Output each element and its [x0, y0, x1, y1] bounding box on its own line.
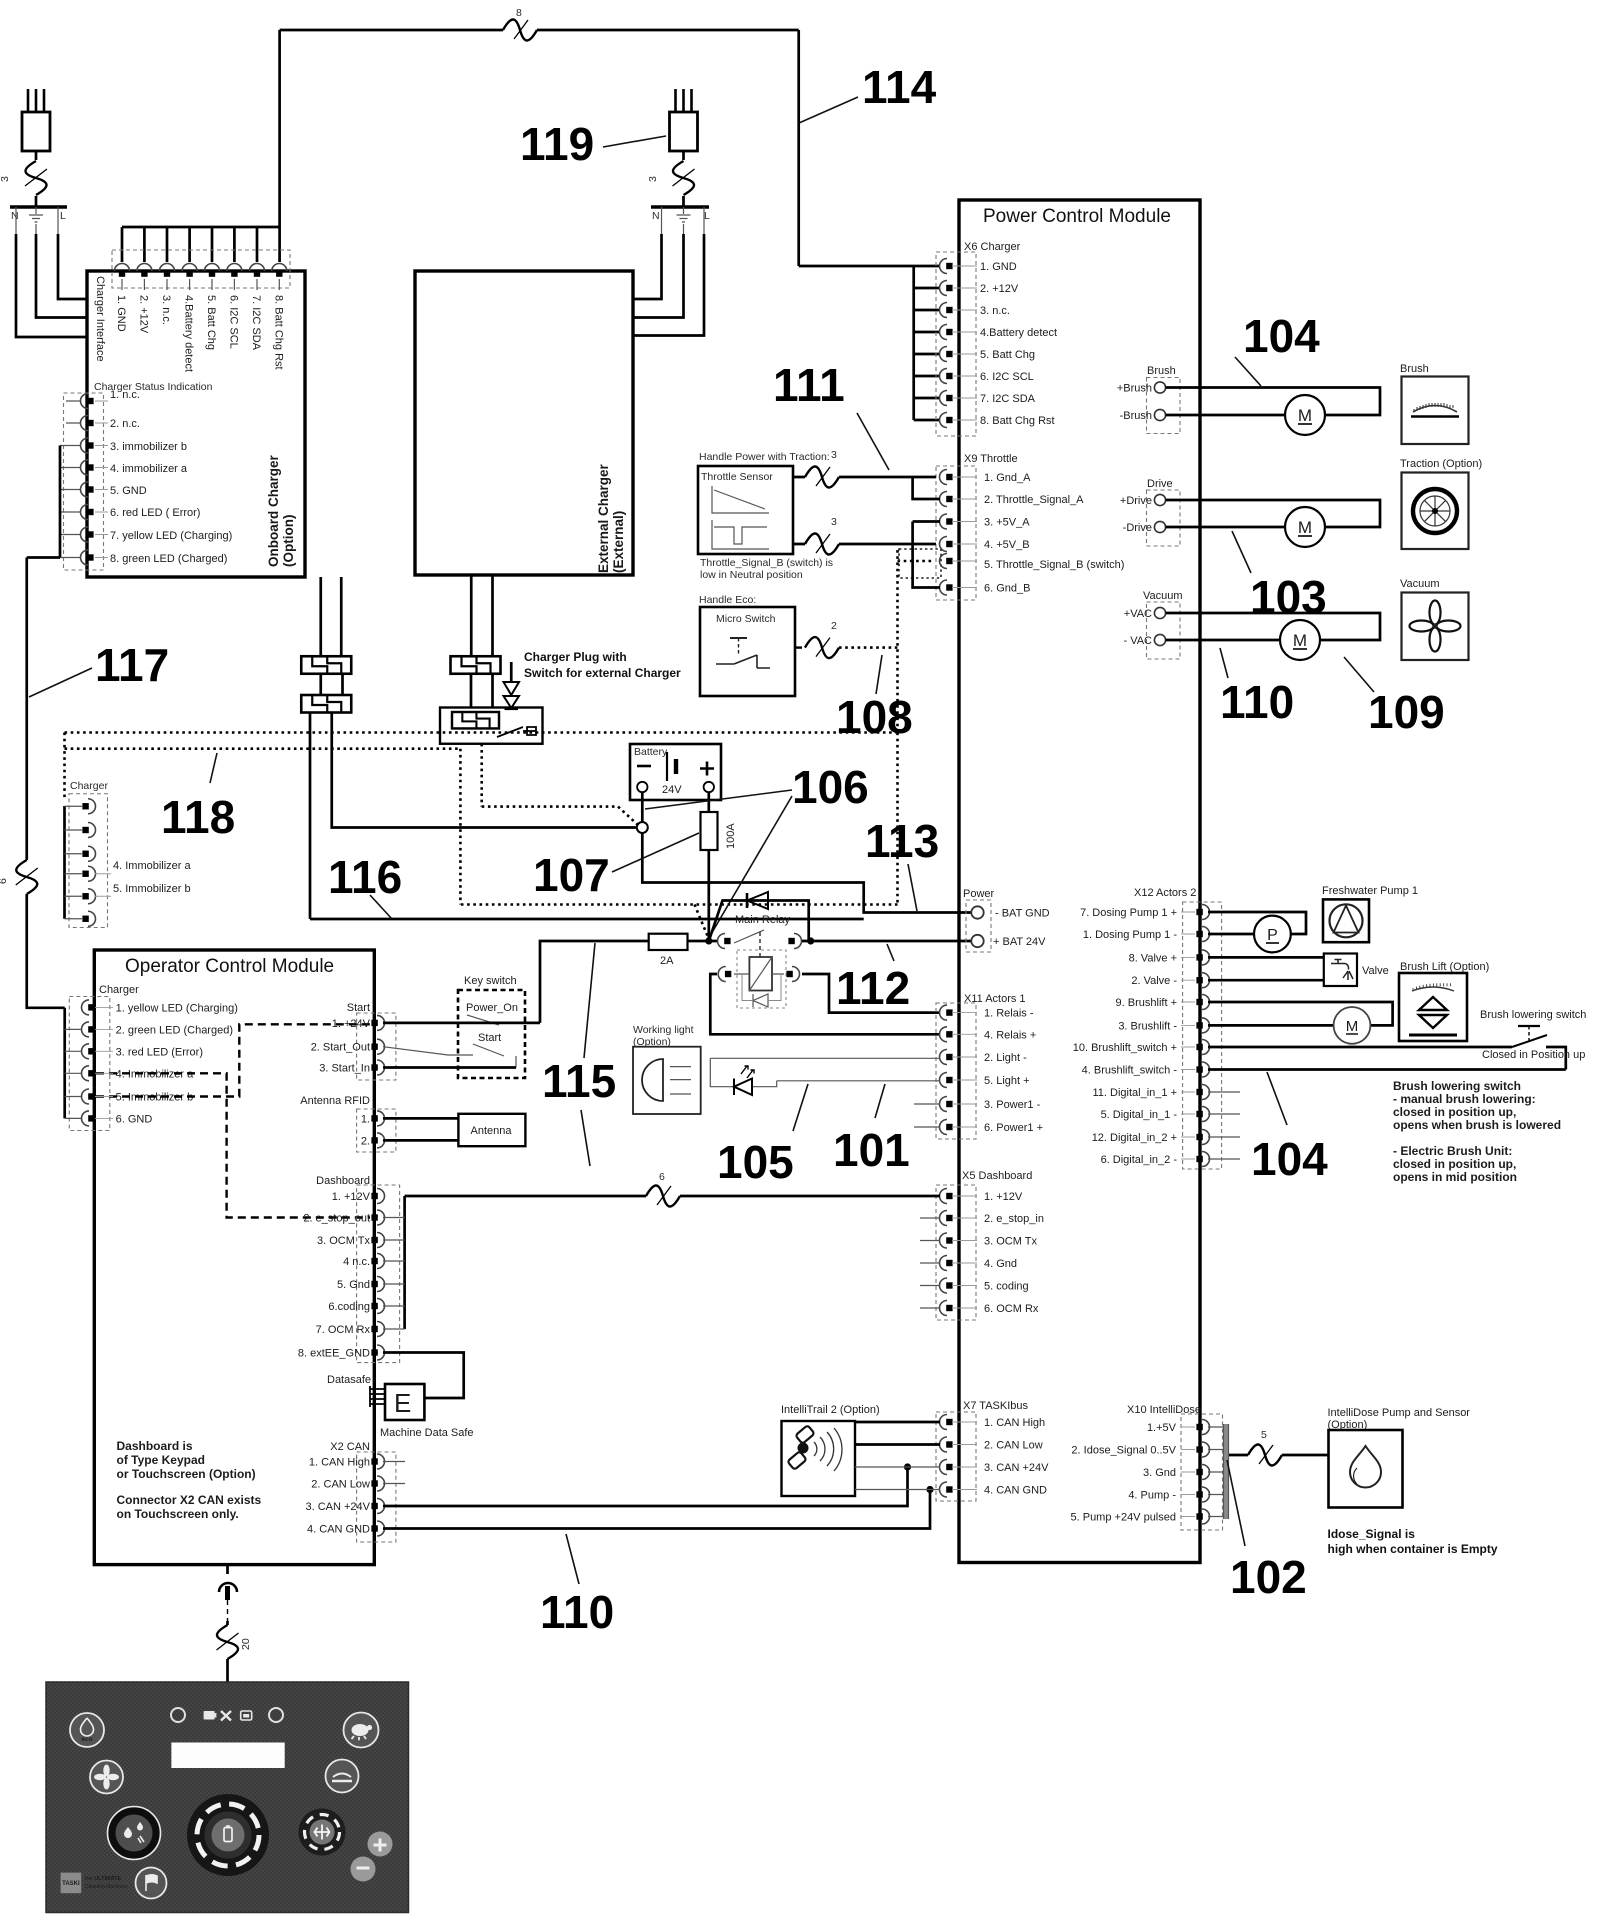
- svg-text:1. +12V: 1. +12V: [332, 1191, 371, 1203]
- svg-text:M: M: [1346, 1018, 1359, 1035]
- svg-text:4. Brushlift_switch -: 4. Brushlift_switch -: [1082, 1065, 1178, 1077]
- svg-text:110: 110: [540, 1586, 614, 1638]
- svg-text:3. red LED (Error): 3. red LED (Error): [116, 1046, 203, 1058]
- svg-text:Switch for external Charger: Switch for external Charger: [524, 666, 681, 680]
- svg-text:3. Brushlift -: 3. Brushlift -: [1118, 1020, 1177, 1032]
- svg-text:114: 114: [862, 61, 937, 113]
- svg-text:108: 108: [836, 691, 913, 743]
- svg-text:2: 2: [831, 620, 837, 632]
- svg-text:Cleaning Machines: Cleaning Machines: [85, 1884, 128, 1890]
- svg-text:Closed in Position up: Closed in Position up: [1482, 1049, 1585, 1061]
- svg-text:5. Digital_in_1 -: 5. Digital_in_1 -: [1101, 1109, 1178, 1121]
- svg-text:Charger: Charger: [70, 780, 108, 792]
- svg-text:6. I2C SCL: 6. I2C SCL: [980, 371, 1034, 383]
- svg-text:+Brush: +Brush: [1117, 383, 1152, 395]
- svg-text:6. Digital_in_2 -: 6. Digital_in_2 -: [1101, 1154, 1178, 1166]
- svg-text:9. Brushlift +: 9. Brushlift +: [1116, 997, 1177, 1009]
- svg-text:1. Relais -: 1. Relais -: [984, 1008, 1034, 1020]
- svg-text:5. Pump +24V pulsed: 5. Pump +24V pulsed: [1071, 1512, 1177, 1524]
- svg-text:3: 3: [831, 516, 837, 528]
- svg-text:5. GND: 5. GND: [110, 485, 147, 497]
- svg-text:of Type Keypad: of Type Keypad: [117, 1453, 205, 1467]
- svg-text:3. Start_In: 3. Start_In: [319, 1063, 370, 1075]
- svg-text:113: 113: [865, 815, 939, 867]
- svg-text:4. Relais +: 4. Relais +: [984, 1029, 1036, 1041]
- svg-text:N: N: [11, 210, 19, 222]
- svg-text:+VAC: +VAC: [1124, 608, 1152, 620]
- svg-text:4. Pump -: 4. Pump -: [1128, 1490, 1176, 1502]
- svg-text:eco: eco: [81, 1736, 92, 1743]
- svg-text:4.Battery detect: 4.Battery detect: [183, 295, 195, 372]
- svg-text:2. Light -: 2. Light -: [984, 1052, 1027, 1064]
- svg-text:4. +5V_B: 4. +5V_B: [984, 539, 1030, 551]
- svg-text:Traction (Option): Traction (Option): [1400, 458, 1482, 470]
- svg-text:Power_On: Power_On: [466, 1002, 518, 1014]
- svg-text:5: 5: [1261, 1429, 1267, 1441]
- svg-text:5. Light +: 5. Light +: [984, 1075, 1030, 1087]
- svg-text:2. CAN Low: 2. CAN Low: [984, 1440, 1043, 1452]
- svg-text:2. CAN Low: 2. CAN Low: [311, 1479, 370, 1491]
- svg-text:IntelliTrail 2 (Option): IntelliTrail 2 (Option): [781, 1404, 880, 1416]
- svg-text:Handle Power with Traction:: Handle Power with Traction:: [699, 451, 830, 463]
- svg-text:Key switch: Key switch: [464, 975, 517, 987]
- svg-text:1. Dosing Pump 1 -: 1. Dosing Pump 1 -: [1083, 929, 1177, 941]
- svg-text:3. OCM Tx: 3. OCM Tx: [317, 1235, 370, 1247]
- svg-text:3. Gnd: 3. Gnd: [1143, 1467, 1176, 1479]
- svg-text:Vacuum: Vacuum: [1400, 578, 1440, 590]
- svg-text:closed in position up,: closed in position up,: [1393, 1157, 1516, 1171]
- svg-text:104: 104: [1243, 310, 1320, 362]
- svg-text:L: L: [704, 210, 710, 222]
- svg-text:N: N: [652, 210, 660, 222]
- svg-text:104: 104: [1251, 1133, 1328, 1185]
- svg-text:7. Dosing Pump 1 +: 7. Dosing Pump 1 +: [1080, 907, 1177, 919]
- svg-text:-Drive: -Drive: [1123, 522, 1152, 534]
- svg-text:- VAC: - VAC: [1123, 635, 1152, 647]
- svg-text:Charger Plug with: Charger Plug with: [524, 650, 627, 664]
- svg-text:IntelliDose Pump and Sensor: IntelliDose Pump and Sensor: [1328, 1407, 1471, 1419]
- svg-text:8. Batt Chg Rst: 8. Batt Chg Rst: [980, 415, 1055, 427]
- svg-text:Onboard Charger: Onboard Charger: [266, 454, 281, 567]
- svg-text:2.: 2.: [361, 1135, 370, 1147]
- svg-text:2. green LED (Charged): 2. green LED (Charged): [116, 1024, 233, 1036]
- svg-text:100A: 100A: [725, 823, 737, 849]
- svg-text:2. Start_Out: 2. Start_Out: [311, 1042, 370, 1054]
- svg-text:2. Idose_Signal 0..5V: 2. Idose_Signal 0..5V: [1071, 1445, 1176, 1457]
- svg-text:6. I2C SCL: 6. I2C SCL: [227, 295, 239, 349]
- svg-text:Start: Start: [478, 1032, 501, 1044]
- svg-text:1. yellow LED (Charging): 1. yellow LED (Charging): [116, 1002, 238, 1014]
- svg-text:+ BAT 24V: + BAT 24V: [993, 936, 1046, 948]
- svg-text:L: L: [60, 210, 66, 222]
- svg-text:Power: Power: [963, 888, 995, 900]
- svg-text:1.+5V: 1.+5V: [1147, 1422, 1177, 1434]
- svg-text:2. n.c.: 2. n.c.: [110, 418, 140, 430]
- svg-text:opens in mid position: opens in mid position: [1393, 1170, 1517, 1184]
- svg-text:2. Valve -: 2. Valve -: [1131, 975, 1177, 987]
- svg-text:Operator Control Module: Operator Control Module: [125, 956, 334, 977]
- svg-text:Charger Interface: Charger Interface: [94, 276, 106, 362]
- svg-text:8. Batt Chg Rst: 8. Batt Chg Rst: [272, 295, 284, 370]
- svg-text:Micro Switch: Micro Switch: [716, 613, 776, 625]
- svg-text:3: 3: [831, 449, 837, 461]
- svg-text:Power Control Module: Power Control Module: [983, 206, 1171, 227]
- svg-text:20: 20: [240, 1638, 252, 1650]
- svg-text:12. Digital_in_2 +: 12. Digital_in_2 +: [1092, 1132, 1177, 1144]
- svg-text:X7 TASKIbus: X7 TASKIbus: [963, 1400, 1029, 1412]
- svg-text:opens when brush is lowered: opens when brush is lowered: [1393, 1118, 1561, 1132]
- svg-text:6. GND: 6. GND: [116, 1113, 153, 1125]
- svg-text:6. Gnd_B: 6. Gnd_B: [984, 583, 1030, 595]
- svg-text:1. GND: 1. GND: [115, 295, 127, 332]
- svg-text:2. e_stop_in: 2. e_stop_in: [984, 1213, 1044, 1225]
- svg-text:Dashboard: Dashboard: [316, 1175, 370, 1187]
- svg-text:3. n.c.: 3. n.c.: [980, 305, 1010, 317]
- svg-text:8. Valve +: 8. Valve +: [1129, 952, 1177, 964]
- svg-text:24V: 24V: [662, 784, 682, 796]
- svg-text:M: M: [1298, 518, 1312, 537]
- svg-text:Valve: Valve: [1362, 965, 1389, 977]
- svg-text:4. immobilizer a: 4. immobilizer a: [110, 463, 188, 475]
- svg-text:Working light: Working light: [633, 1024, 694, 1036]
- svg-text:102: 102: [1230, 1551, 1307, 1603]
- svg-text:Idose_Signal is: Idose_Signal is: [1328, 1527, 1416, 1541]
- svg-text:1. n.c.: 1. n.c.: [110, 389, 140, 401]
- svg-text:4. CAN GND: 4. CAN GND: [307, 1524, 370, 1536]
- svg-text:5. Throttle_Signal_B (switch): 5. Throttle_Signal_B (switch): [984, 559, 1124, 571]
- svg-text:4 n.c.: 4 n.c.: [343, 1256, 370, 1268]
- svg-text:Dashboard is: Dashboard is: [117, 1439, 193, 1453]
- svg-text:1. Gnd_A: 1. Gnd_A: [984, 472, 1031, 484]
- svg-text:high when container is Empty: high when container is Empty: [1328, 1542, 1498, 1556]
- svg-text:M: M: [1298, 406, 1312, 425]
- svg-text:closed in position up,: closed in position up,: [1393, 1105, 1516, 1119]
- svg-text:3. OCM Tx: 3. OCM Tx: [984, 1236, 1037, 1248]
- svg-text:Brush lowering switch: Brush lowering switch: [1393, 1079, 1521, 1093]
- svg-text:low in Neutral position: low in Neutral position: [700, 569, 803, 581]
- svg-text:Freshwater Pump 1: Freshwater Pump 1: [1322, 885, 1418, 897]
- svg-text:5. Batt Chg: 5. Batt Chg: [205, 295, 217, 350]
- svg-text:1. +24V: 1. +24V: [332, 1018, 371, 1030]
- svg-text:4. CAN GND: 4. CAN GND: [984, 1485, 1047, 1497]
- svg-text:Machine Data Safe: Machine Data Safe: [380, 1427, 474, 1439]
- svg-text:109: 109: [1368, 686, 1445, 738]
- svg-text:11. Digital_in_1 +: 11. Digital_in_1 +: [1093, 1087, 1178, 1099]
- svg-text:110: 110: [1220, 676, 1294, 728]
- svg-text:8. green LED (Charged): 8. green LED (Charged): [110, 553, 227, 565]
- svg-text:M: M: [1293, 631, 1307, 650]
- svg-text:Brush: Brush: [1147, 365, 1176, 377]
- svg-text:5. Batt Chg: 5. Batt Chg: [980, 349, 1035, 361]
- svg-text:112: 112: [836, 962, 910, 1014]
- svg-text:X6 Charger: X6 Charger: [964, 241, 1021, 253]
- svg-text:the ULTIMATE: the ULTIMATE: [85, 1876, 122, 1882]
- svg-text:10. Brushlift_switch +: 10. Brushlift_switch +: [1073, 1042, 1177, 1054]
- svg-text:TASKI: TASKI: [62, 1881, 80, 1887]
- svg-text:1. +12V: 1. +12V: [984, 1191, 1023, 1203]
- svg-text:X5 Dashboard: X5 Dashboard: [962, 1170, 1032, 1182]
- svg-text:on Touchscreen only.: on Touchscreen only.: [117, 1507, 239, 1521]
- svg-text:5. Gnd: 5. Gnd: [337, 1279, 370, 1291]
- svg-text:116: 116: [328, 851, 402, 903]
- svg-text:Throttle Sensor: Throttle Sensor: [701, 471, 773, 483]
- svg-text:- manual brush lowering:: - manual brush lowering:: [1393, 1092, 1536, 1106]
- svg-text:7. I2C SDA: 7. I2C SDA: [250, 295, 262, 351]
- svg-text:Vacuum: Vacuum: [1143, 590, 1183, 602]
- svg-text:6. Power1 +: 6. Power1 +: [984, 1122, 1043, 1134]
- svg-text:Antenna: Antenna: [471, 1125, 513, 1137]
- svg-text:106: 106: [792, 761, 869, 813]
- svg-text:3. +5V_A: 3. +5V_A: [984, 517, 1030, 529]
- svg-text:2. +12V: 2. +12V: [137, 295, 149, 334]
- svg-text:Charger: Charger: [99, 984, 139, 996]
- svg-text:4. Gnd: 4. Gnd: [984, 1258, 1017, 1270]
- svg-text:8. extEE_GND: 8. extEE_GND: [298, 1348, 370, 1360]
- svg-text:103: 103: [1250, 571, 1327, 623]
- svg-text:or Touchscreen (Option): or Touchscreen (Option): [117, 1467, 256, 1481]
- svg-text:Datasafe: Datasafe: [327, 1374, 371, 1386]
- svg-text:6: 6: [0, 878, 9, 884]
- svg-text:118: 118: [161, 791, 235, 843]
- svg-text:X9 Throttle: X9 Throttle: [964, 453, 1018, 465]
- svg-text:Connector X2 CAN exists: Connector X2 CAN exists: [117, 1493, 262, 1507]
- svg-text:E: E: [394, 1388, 411, 1418]
- svg-text:X12 Actors 2: X12 Actors 2: [1134, 887, 1196, 899]
- svg-text:7. OCM Rx: 7. OCM Rx: [316, 1324, 371, 1336]
- svg-text:7. I2C SDA: 7. I2C SDA: [980, 393, 1036, 405]
- svg-text:Throttle_Signal_B (switch) is: Throttle_Signal_B (switch) is: [700, 557, 833, 569]
- svg-text:External Charger: External Charger: [596, 463, 611, 573]
- svg-text:119: 119: [520, 118, 594, 170]
- svg-text:Brush: Brush: [1400, 363, 1429, 375]
- svg-text:2A: 2A: [660, 955, 674, 967]
- svg-text:Start: Start: [347, 1002, 370, 1014]
- svg-text:2. Throttle_Signal_A: 2. Throttle_Signal_A: [984, 494, 1084, 506]
- svg-text:3: 3: [647, 176, 659, 182]
- svg-text:4. Immobilizer a: 4. Immobilizer a: [113, 860, 192, 872]
- svg-text:(Option): (Option): [281, 515, 296, 567]
- svg-text:Antenna RFID: Antenna RFID: [300, 1095, 370, 1107]
- svg-text:3. n.c.: 3. n.c.: [160, 295, 172, 325]
- svg-text:Brush lowering switch: Brush lowering switch: [1480, 1009, 1586, 1021]
- svg-text:Drive: Drive: [1147, 478, 1173, 490]
- svg-text:107: 107: [533, 849, 610, 901]
- svg-text:3. CAN +24V: 3. CAN +24V: [305, 1501, 370, 1513]
- svg-text:Handle Eco:: Handle Eco:: [699, 594, 756, 606]
- svg-text:3. immobilizer b: 3. immobilizer b: [110, 441, 187, 453]
- svg-text:4.Battery detect: 4.Battery detect: [980, 327, 1057, 339]
- svg-text:7. yellow LED (Charging): 7. yellow LED (Charging): [110, 530, 232, 542]
- svg-text:2. +12V: 2. +12V: [980, 283, 1019, 295]
- svg-text:- Electric Brush Unit:: - Electric Brush Unit:: [1393, 1144, 1512, 1158]
- svg-text:3. CAN +24V: 3. CAN +24V: [984, 1462, 1049, 1474]
- svg-text:117: 117: [95, 639, 169, 691]
- svg-text:111: 111: [773, 359, 845, 411]
- svg-text:3. Power1 -: 3. Power1 -: [984, 1099, 1041, 1111]
- svg-text:105: 105: [717, 1136, 794, 1188]
- svg-text:3: 3: [0, 176, 11, 182]
- svg-text:1.: 1.: [361, 1113, 370, 1125]
- svg-text:6.coding: 6.coding: [328, 1301, 370, 1313]
- svg-text:1. CAN High: 1. CAN High: [984, 1417, 1045, 1429]
- svg-text:2. e_stop_out: 2. e_stop_out: [303, 1213, 370, 1225]
- svg-text:115: 115: [542, 1055, 616, 1107]
- svg-text:- BAT GND: - BAT GND: [995, 908, 1050, 920]
- svg-text:Main Relay: Main Relay: [735, 914, 791, 926]
- svg-text:8: 8: [516, 7, 522, 19]
- svg-text:(External): (External): [611, 511, 626, 573]
- svg-text:-Brush: -Brush: [1120, 410, 1152, 422]
- svg-text:101: 101: [833, 1124, 910, 1176]
- svg-text:5. coding: 5. coding: [984, 1281, 1029, 1293]
- svg-text:P: P: [1267, 927, 1278, 944]
- svg-text:6. red LED ( Error): 6. red LED ( Error): [110, 507, 200, 519]
- svg-text:6: 6: [659, 1171, 665, 1183]
- svg-text:Brush Lift (Option): Brush Lift (Option): [1400, 961, 1489, 973]
- svg-text:1. GND: 1. GND: [980, 261, 1017, 273]
- svg-text:+Drive: +Drive: [1120, 495, 1152, 507]
- svg-text:6. OCM Rx: 6. OCM Rx: [984, 1303, 1039, 1315]
- svg-text:1. CAN High: 1. CAN High: [309, 1457, 370, 1469]
- svg-text:5. Immobilizer b: 5. Immobilizer b: [113, 883, 191, 895]
- svg-text:Battery: Battery: [634, 746, 668, 758]
- svg-text:X2 CAN: X2 CAN: [330, 1441, 370, 1453]
